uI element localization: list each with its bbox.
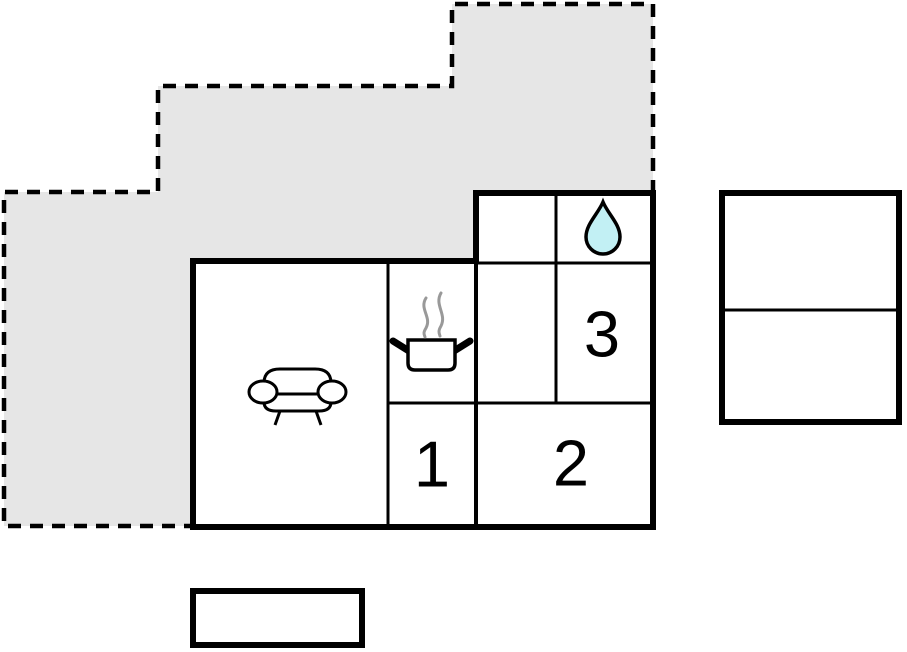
sofa-left-armrest bbox=[249, 381, 277, 403]
annex-outline bbox=[722, 193, 899, 422]
room-2-label: 2 bbox=[553, 427, 589, 500]
floor-plan-page: 1 2 3 bbox=[0, 0, 907, 652]
sofa-right-armrest bbox=[318, 381, 346, 403]
shed-outline bbox=[193, 591, 362, 645]
room-3-label: 3 bbox=[584, 298, 620, 371]
floor-plan-canvas: 1 2 3 bbox=[0, 0, 907, 652]
pot-body bbox=[408, 340, 455, 370]
room-1-label: 1 bbox=[414, 428, 450, 501]
annex-building bbox=[722, 193, 899, 422]
